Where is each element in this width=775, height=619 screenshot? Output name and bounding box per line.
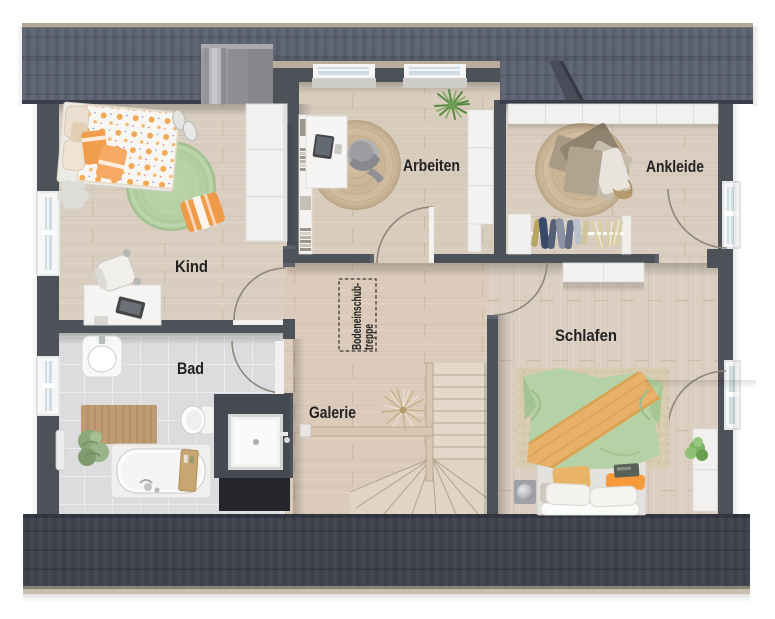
svg-text:Arbeiten: Arbeiten <box>403 156 460 175</box>
svg-text:treppe: treppe <box>361 324 376 350</box>
svg-text:Bad: Bad <box>177 359 204 378</box>
svg-text:Galerie: Galerie <box>309 403 356 422</box>
svg-text:Ankleide: Ankleide <box>646 157 704 176</box>
svg-text:Schlafen: Schlafen <box>555 326 617 345</box>
svg-text:Kind: Kind <box>175 257 208 276</box>
